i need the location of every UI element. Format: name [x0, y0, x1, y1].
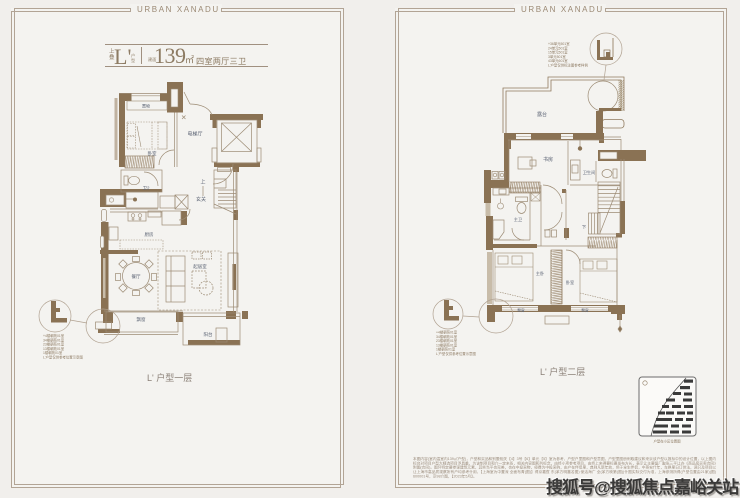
svg-text:起居室: 起居室 — [193, 263, 207, 270]
svg-text:卧室: 卧室 — [148, 150, 157, 157]
svg-text:43单元601室: 43单元601室 — [548, 58, 568, 63]
svg-text:卫生间: 卫生间 — [583, 169, 596, 176]
svg-text:15单元501室: 15单元501室 — [548, 50, 568, 55]
svg-text:厨房: 厨房 — [145, 231, 154, 238]
svg-text:34楼朝苑01室: 34楼朝苑01室 — [43, 337, 65, 342]
svg-text:+4楼朝苑01室: +4楼朝苑01室 — [436, 330, 458, 335]
svg-text:书房: 书房 — [543, 156, 553, 163]
svg-text:24单元501室: 24单元501室 — [548, 45, 568, 50]
svg-text:13楼朝苑01室: 13楼朝苑01室 — [43, 346, 65, 351]
svg-text:露台: 露台 — [537, 111, 547, 118]
svg-text:飘窗: 飘窗 — [137, 316, 146, 323]
svg-text:主卧: 主卧 — [536, 270, 544, 277]
svg-text:3单元501室: 3单元501室 — [548, 54, 566, 59]
svg-text:+4楼朝苑01室: +4楼朝苑01室 — [43, 333, 65, 338]
svg-text:L'户型仅供参考位置示意图: L'户型仅供参考位置示意图 — [436, 351, 476, 356]
svg-text:阳台: 阳台 — [204, 331, 213, 338]
svg-text:上: 上 — [200, 179, 205, 186]
svg-text:电梯厅: 电梯厅 — [187, 131, 202, 138]
svg-text:下: 下 — [582, 225, 587, 231]
svg-text:1楼朝苑01室: 1楼朝苑01室 — [436, 347, 456, 352]
svg-text:飘窗: 飘窗 — [517, 308, 525, 313]
svg-text:1楼朝苑01室: 1楼朝苑01室 — [43, 350, 63, 355]
svg-text:飘窗: 飘窗 — [581, 308, 589, 313]
svg-text:L'户型仅供参考位置示意图: L'户型仅供参考位置示意图 — [43, 355, 83, 360]
svg-text:主卫: 主卫 — [514, 216, 522, 222]
svg-text:L'户型仅供标注图参考样例: L'户型仅供标注图参考样例 — [548, 63, 588, 68]
svg-text:13楼朝苑01室: 13楼朝苑01室 — [436, 342, 458, 347]
svg-text:置物: 置物 — [142, 103, 150, 109]
svg-text:餐厅: 餐厅 — [132, 273, 141, 280]
svg-text:23楼朝苑01室: 23楼朝苑01室 — [436, 338, 458, 343]
svg-text:卫2: 卫2 — [142, 186, 149, 191]
svg-text:23楼朝苑01室: 23楼朝苑01室 — [43, 342, 65, 347]
svg-text:34楼朝苑01室: 34楼朝苑01室 — [436, 334, 458, 339]
svg-text:户型在小区位置图: 户型在小区位置图 — [653, 439, 681, 444]
svg-text:玄关: 玄关 — [196, 196, 206, 203]
svg-text:+36单元501室: +36单元501室 — [548, 41, 570, 46]
svg-text:卧室: 卧室 — [566, 279, 574, 286]
